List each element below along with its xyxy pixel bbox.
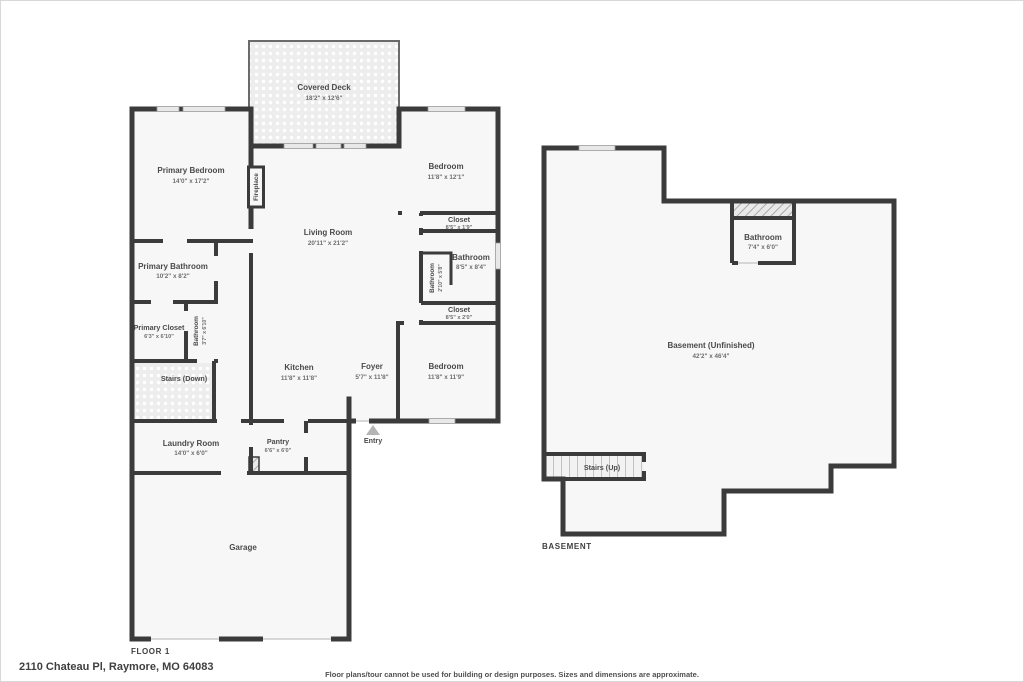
- floorplan-canvas: Covered Deck 18'2" x 12'6" Primary Bedro…: [1, 1, 1024, 682]
- basement-main-label: Basement (Unfinished): [667, 341, 754, 350]
- closet-upper-label: Closet: [448, 215, 471, 224]
- basement-window: [579, 146, 615, 151]
- floor1-plan: Covered Deck 18'2" x 12'6" Primary Bedro…: [130, 41, 501, 656]
- primary-bathroom-label: Primary Bathroom: [138, 262, 208, 271]
- stairs-up-label: Stairs (Up): [584, 463, 621, 472]
- bedroom-lower-dims: 11'8" x 11'9": [428, 374, 464, 381]
- basement-bathroom-dims: 7'4" x 6'0": [748, 244, 778, 251]
- kitchen-dims: 11'8" x 11'8": [281, 375, 317, 382]
- floor1-title: FLOOR 1: [131, 647, 170, 656]
- covered-deck-area: [249, 41, 399, 146]
- foyer-label: Foyer: [361, 362, 383, 371]
- closet-lower-dims: 8'5" x 2'0": [446, 315, 473, 321]
- disclaimer-text: Floor plans/tour cannot be used for buil…: [1, 670, 1023, 679]
- foyer-dims: 5'7" x 11'8": [355, 374, 388, 381]
- primary-bathroom-dims: 10'2" x 8'2": [156, 273, 189, 280]
- pantry-label: Pantry: [267, 437, 289, 446]
- bathroom-water-label: Bathroom: [429, 263, 436, 293]
- kitchen-label: Kitchen: [284, 363, 313, 372]
- stairs-down-area: [134, 363, 214, 419]
- entry-arrow-icon: [366, 425, 380, 435]
- living-room-dims: 20'11" x 21'2": [308, 240, 348, 247]
- basement-main-dims: 42'2" x 46'4": [693, 353, 730, 360]
- living-room-label: Living Room: [304, 228, 352, 237]
- primary-closet-dims: 6'3" x 6'10": [144, 334, 174, 340]
- bedroom-upper-dims: 11'8" x 12'1": [428, 174, 465, 181]
- basement-bathroom-label: Bathroom: [744, 233, 782, 242]
- entry-label: Entry: [364, 436, 382, 445]
- laundry-label: Laundry Room: [163, 439, 219, 448]
- bathroom-water-dims: 2'10" x 5'8": [438, 264, 444, 292]
- bedroom-lower-label: Bedroom: [428, 362, 463, 371]
- floorplan-page: Covered Deck 18'2" x 12'6" Primary Bedro…: [0, 0, 1024, 682]
- primary-closet-label: Primary Closet: [134, 323, 185, 332]
- closet-upper-dims: 8'5" x 1'9": [446, 225, 473, 231]
- pantry-dims: 6'6" x 6'0": [265, 448, 292, 454]
- stairs-down-label: Stairs (Down): [161, 374, 208, 383]
- primary-bedroom-label: Primary Bedroom: [157, 166, 224, 175]
- closet-lower-label: Closet: [448, 305, 471, 314]
- covered-deck-dims: 18'2" x 12'6": [306, 95, 343, 102]
- covered-deck-label: Covered Deck: [297, 83, 351, 92]
- laundry-dims: 14'0" x 6'0": [174, 450, 207, 457]
- bedroom-upper-label: Bedroom: [428, 162, 463, 171]
- bathroom-hall-label: Bathroom: [452, 253, 490, 262]
- bathroom-primary-wc-label: Bathroom: [193, 316, 200, 346]
- basement-title: BASEMENT: [542, 542, 592, 551]
- basement-plan: Bathroom 7'4" x 6'0" Basement (Unfinishe…: [542, 146, 894, 552]
- fireplace-label: Fireplace: [253, 173, 260, 201]
- bathroom-primary-wc-dims: 3'7" x 6'10": [202, 317, 208, 345]
- primary-bedroom-dims: 14'0" x 17'2": [173, 178, 210, 185]
- bathroom-hall-dims: 8'5" x 8'4": [456, 264, 486, 271]
- garage-label: Garage: [229, 543, 257, 552]
